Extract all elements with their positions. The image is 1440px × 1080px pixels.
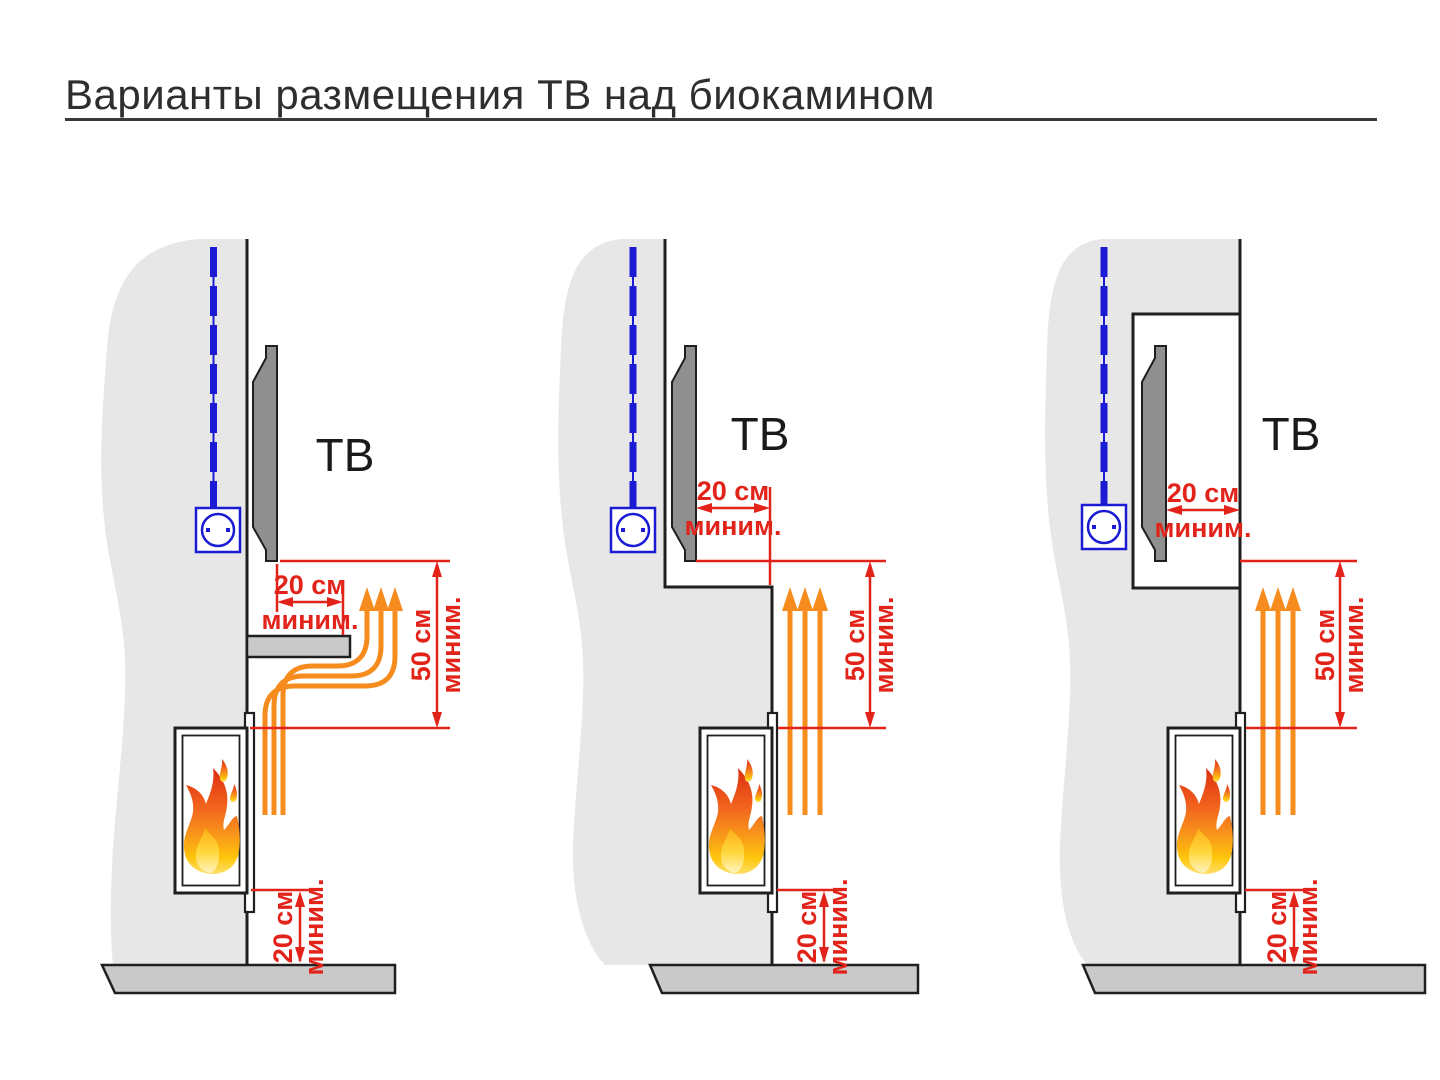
biofireplace [700,713,777,912]
tv-label: ТВ [316,429,375,481]
dim-min-label: миним. [685,511,782,541]
tv-label: ТВ [731,408,790,460]
dim-20cm-label: 20 см [268,891,298,964]
floor-slab [650,965,918,993]
infographic-canvas: Варианты размещения ТВ над биокамином [0,0,1440,1080]
dim-min-label: миним. [299,879,329,976]
dim-20cm-label: 20 см [792,891,822,964]
diagram-variant-3: 20 см миним. 50 см миним. 20 см миним. Т… [1020,130,1440,1080]
dimension-floor-clearance: 20 см миним. [777,879,853,976]
dimension-shelf-gap: 20 см миним. [262,564,359,635]
dim-min-label: миним. [823,879,853,976]
dim-min-label: миним. [1293,879,1323,976]
tv-label: ТВ [1262,408,1321,460]
dim-20cm-label: 20 см [1262,891,1292,964]
protective-shelf [247,636,350,657]
dim-20cm-label: 20 см [1167,478,1240,508]
dim-min-label: миним. [436,597,466,694]
dimension-vertical-clearance: 50 см миним. [1240,561,1369,728]
dim-50cm-label: 50 см [406,609,436,682]
airflow-arrows [782,587,828,815]
power-outlet-icon [611,508,655,552]
biofireplace [1168,713,1245,912]
dim-min-label: миним. [262,605,359,635]
airflow-arrows [1255,587,1301,815]
tv-side-profile [253,346,277,561]
title-underline [65,118,1377,121]
power-outlet-icon [1082,505,1126,549]
dimension-floor-clearance: 20 см миним. [251,879,329,976]
dim-min-label: миним. [1155,513,1252,543]
dimension-niche-depth: 20 см миним. [1155,478,1252,543]
dim-min-label: миним. [869,597,899,694]
floor-slab [1083,965,1425,993]
dim-50cm-label: 50 см [840,609,870,682]
floor-slab [102,965,395,993]
dim-20cm-label: 20 см [274,570,347,600]
dim-20cm-label: 20 см [697,476,770,506]
dimension-recess-depth: 20 см миним. [685,476,782,585]
page-title: Варианты размещения ТВ над биокамином [65,72,935,118]
dim-50cm-label: 50 см [1310,609,1340,682]
diagram-variant-1: 20 см миним. 50 см миним. 20 см миним. Т… [60,130,500,1080]
diagram-variant-2: 20 см миним. 50 см миним. 20 см миним. Т… [540,130,960,1080]
power-outlet-icon [196,508,240,552]
dimension-floor-clearance: 20 см миним. [1245,879,1323,976]
biofireplace [175,713,254,912]
dim-min-label: миним. [1339,597,1369,694]
